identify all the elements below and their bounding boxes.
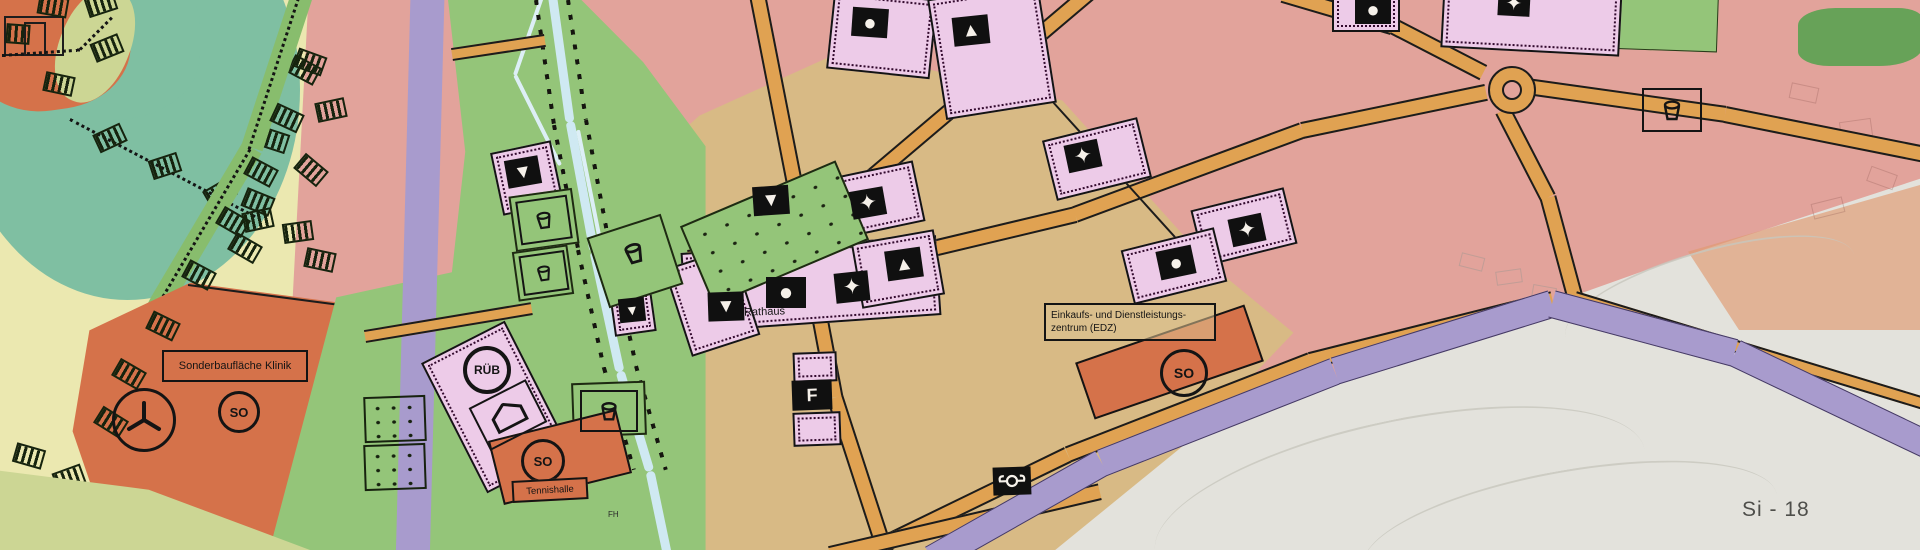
well-symbol <box>1642 88 1702 132</box>
triangle-down-icon: ▼ <box>716 297 735 317</box>
symbol-square: ✦ <box>834 270 871 303</box>
edz-label-box: Einkaufs- und Dienstleistungs- zentrum (… <box>1044 303 1216 341</box>
road-roundabout-south <box>1495 107 1555 202</box>
so-text: SO <box>230 405 249 420</box>
posthorn-icon <box>997 470 1028 491</box>
circle-icon: ● <box>1366 0 1379 21</box>
edz-line2: zentrum (EDZ) <box>1051 322 1117 336</box>
church-icon: ✦ <box>1072 143 1095 168</box>
rueb-circle: RÜB <box>463 346 511 394</box>
symbol-square: ● <box>851 7 889 38</box>
fire-station-icon: F <box>791 379 832 410</box>
building-hatch-icon <box>5 23 30 45</box>
well-symbol <box>580 390 638 432</box>
zoning-map: F ● ▲ ▼ ▼ ● ✦ ✦ ▲ ✦ ✦ ● ● ✦ ▼ ▼ <box>0 0 1920 550</box>
church-icon: ✦ <box>857 191 879 216</box>
road-roundabout-south <box>1540 195 1584 300</box>
symbol-square-post <box>993 466 1032 495</box>
road-roundabout-east <box>1723 106 1920 163</box>
playground-symbol <box>363 443 427 491</box>
church-icon: ✦ <box>1236 217 1259 242</box>
symbol-square: ▼ <box>618 297 646 324</box>
church-icon: ✦ <box>842 275 863 299</box>
communal-parcel-fire <box>792 351 837 383</box>
triangle-down-icon: ▼ <box>624 302 639 317</box>
symbol-square: ▼ <box>752 185 790 216</box>
klinik-label-text: Sonderbaufläche Klinik <box>179 360 292 372</box>
roundabout-island <box>1502 80 1522 100</box>
windmill-icon <box>122 398 166 442</box>
communal-parcel <box>1440 0 1622 57</box>
so-circle-klinik: SO <box>218 391 260 433</box>
pot-icon <box>533 261 556 286</box>
building-hatch-icon <box>282 220 314 244</box>
rathaus-label: Rathaus <box>744 305 785 318</box>
church-icon: ✦ <box>1505 0 1523 14</box>
tennishalle-text: Tennishalle <box>526 483 574 496</box>
symbol-square: ▼ <box>504 155 542 188</box>
pot-icon <box>597 399 621 423</box>
so-circle-edz: SO <box>1160 349 1208 397</box>
pot-icon <box>618 236 651 270</box>
well-symbol <box>518 250 569 296</box>
symbol-square: ▲ <box>952 14 991 47</box>
so-text: SO <box>1174 365 1194 381</box>
triangle-down-icon: ▼ <box>512 161 534 183</box>
so-text: SO <box>534 454 553 469</box>
edz-line1: Einkaufs- und Dienstleistungs- <box>1051 309 1186 323</box>
playground-symbol <box>363 395 427 443</box>
rueb-text: RÜB <box>474 363 500 377</box>
road-east-west <box>1300 84 1488 139</box>
klinik-label-box: Sonderbaufläche Klinik <box>162 350 308 382</box>
stream-marker-label: FH <box>608 510 619 519</box>
symbol-square: ▼ <box>708 291 745 321</box>
triangle-down-icon: ▼ <box>761 190 781 210</box>
symbol-square-rathaus: ● <box>766 277 806 308</box>
tennishalle-label-box: Tennishalle <box>511 477 588 503</box>
sheet-code-label: Si - 18 <box>1742 498 1810 522</box>
topo-building <box>1789 82 1820 103</box>
symbol-square: ✦ <box>849 186 887 219</box>
triangle-up-icon: ▲ <box>893 253 914 274</box>
pot-icon <box>1659 97 1685 123</box>
symbol-square: ▲ <box>884 247 924 282</box>
topo-building <box>1459 252 1486 271</box>
circle-icon: ● <box>779 281 794 305</box>
symbol-square: ✦ <box>1497 0 1530 17</box>
pot-icon <box>531 207 556 234</box>
house-icon <box>486 395 530 435</box>
zone-trees-northeast <box>1798 8 1920 66</box>
so-circle-tennis: SO <box>521 439 565 483</box>
fire-station-letter: F <box>806 386 818 404</box>
triangle-up-icon: ▲ <box>961 20 982 41</box>
symbol-square: ● <box>1355 0 1391 24</box>
well-symbol <box>515 195 573 246</box>
topo-building <box>1866 166 1898 191</box>
windmill-symbol <box>112 388 176 452</box>
communal-parcel <box>927 0 1057 120</box>
topo-building <box>1495 268 1523 285</box>
circle-icon: ● <box>1167 250 1185 274</box>
communal-parcel-fire <box>792 411 841 447</box>
circle-icon: ● <box>863 11 878 34</box>
